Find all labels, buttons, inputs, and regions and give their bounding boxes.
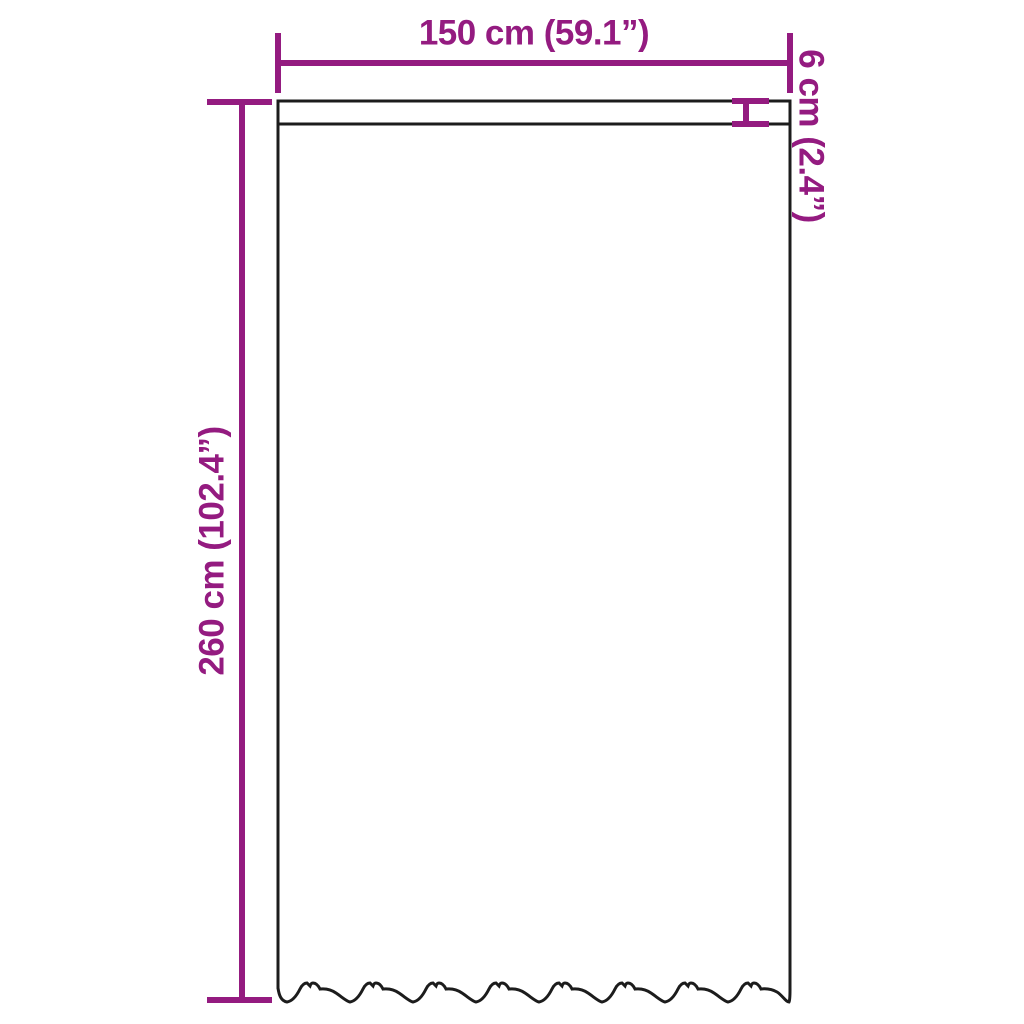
header-dimension-line [743, 100, 749, 125]
header-dimension-cap-bottom [732, 121, 769, 127]
header-dimension-label: 6 cm (2.4”) [794, 49, 829, 222]
width-dimension-line [278, 60, 790, 66]
curtain-dimension-diagram: 150 cm (59.1”) 260 cm (102.4”) 6 cm (2.4… [0, 0, 1024, 1024]
width-dimension-cap-left [275, 33, 281, 93]
curtain-drawing [0, 0, 1024, 1024]
height-dimension-label: 260 cm (102.4”) [195, 426, 230, 675]
height-dimension-cap-top [207, 99, 272, 105]
curtain-outline [278, 101, 790, 990]
curtain-scalloped-hem [278, 983, 790, 1002]
height-dimension-cap-bottom [207, 997, 272, 1003]
height-dimension-line [239, 101, 245, 1002]
width-dimension-label: 150 cm (59.1”) [419, 16, 649, 51]
header-dimension-cap-top [732, 98, 769, 104]
